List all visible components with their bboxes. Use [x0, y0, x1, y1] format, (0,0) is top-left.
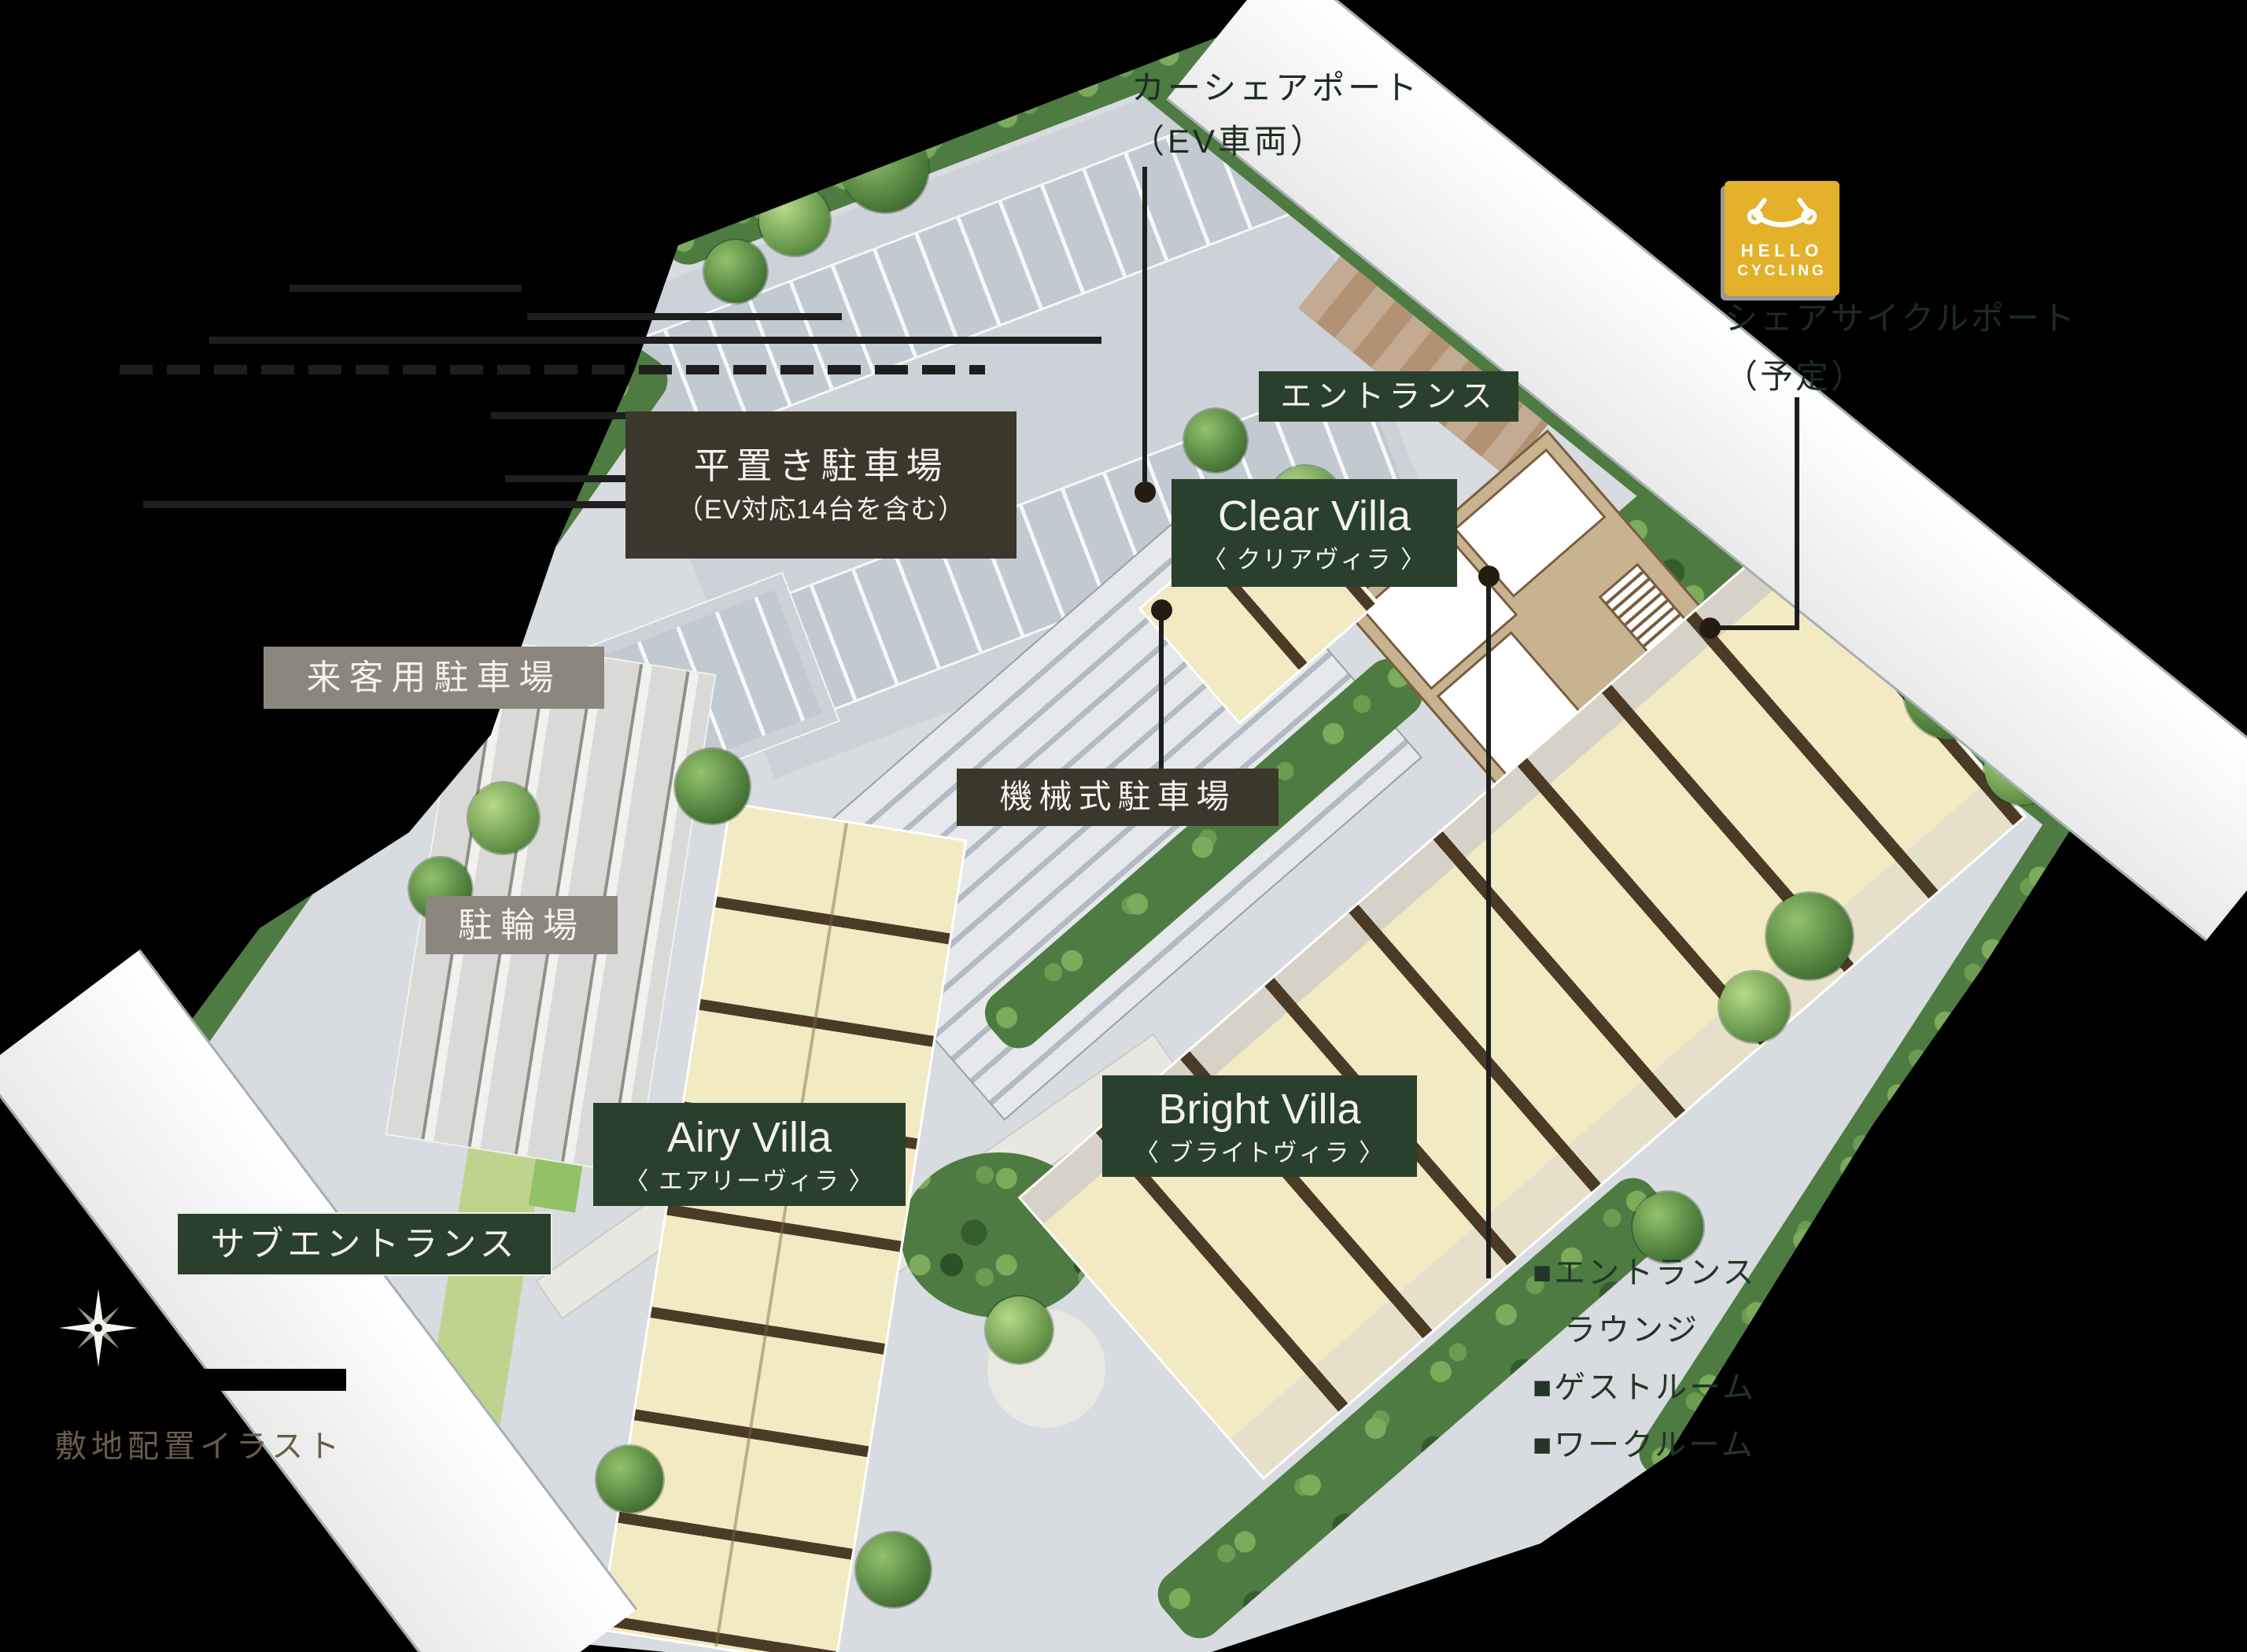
- villa-name-en: Airy Villa: [667, 1112, 832, 1165]
- annotation-line: カーシェアポート: [1131, 61, 1420, 115]
- tree: [1184, 409, 1247, 472]
- tree: [675, 749, 750, 824]
- leader-line-carshare: [1142, 167, 1147, 481]
- villa-name-en: Clear Villa: [1218, 490, 1411, 544]
- leader-line-sharecycle: [1795, 397, 1799, 630]
- tree: [1766, 893, 1853, 979]
- label-text: 機械式駐車場: [999, 776, 1235, 818]
- leader-line: [209, 337, 1101, 344]
- villa-name-en: Bright Villa: [1158, 1083, 1360, 1137]
- leader-dot: [1135, 481, 1156, 503]
- facility-item: ■ワークルーム: [1533, 1417, 1756, 1474]
- tree: [856, 1532, 931, 1607]
- tree: [468, 783, 539, 854]
- label-text: 平置き駐車場: [694, 444, 949, 489]
- label-sub-entrance: サブエントランス: [176, 1212, 552, 1276]
- facility-item: ■エントランス: [1533, 1245, 1756, 1302]
- leader-dot: [1699, 618, 1721, 639]
- label-bright-villa: Bright Villa 〈 ブライトヴィラ 〉: [1102, 1075, 1417, 1177]
- caption-site-plan: 敷地配置イラスト: [55, 1421, 344, 1466]
- leader-line: [143, 501, 625, 508]
- leader-dot: [1478, 566, 1500, 587]
- label-text: 駐輪場: [458, 904, 585, 947]
- label-visitor-parking: 来客用駐車場: [264, 647, 604, 709]
- tree: [1719, 972, 1790, 1042]
- mask-artifact: [2006, 1489, 2093, 1513]
- badge-brand-line1: HELLO: [1741, 241, 1824, 261]
- mask-artifact: [2152, 983, 2169, 1001]
- label-text: エントランス: [1280, 377, 1496, 416]
- annotation-line: シェアサイクルポート: [1725, 289, 2077, 348]
- villa-name-ja: 〈 ブライトヴィラ 〉: [1135, 1138, 1385, 1169]
- label-bicycle-parking: 駐輪場: [426, 896, 618, 954]
- label-clear-villa: Clear Villa 〈 クリアヴィラ 〉: [1171, 479, 1457, 587]
- label-airy-villa: Airy Villa 〈 エアリーヴィラ 〉: [593, 1103, 906, 1206]
- label-entrance: エントランス: [1259, 371, 1518, 422]
- annotation-line: （EV車両）: [1131, 115, 1420, 168]
- leader-line: [1159, 620, 1164, 771]
- leader-dot: [1151, 599, 1172, 621]
- leader-line: [1720, 625, 1799, 630]
- leader-line: [527, 313, 842, 320]
- label-text: 来客用駐車場: [307, 656, 562, 699]
- tree: [704, 240, 767, 303]
- hello-cycling-badge: HELLO CYCLING: [1725, 181, 1839, 296]
- leader-line-dashed: [120, 365, 985, 374]
- facility-item: ■ゲストルーム: [1533, 1359, 1756, 1417]
- badge-brand-line2: CYCLING: [1737, 263, 1827, 280]
- facility-item: ラウンジ: [1564, 1302, 1756, 1359]
- mask-artifact: [1766, 118, 1788, 140]
- label-flat-parking: 平置き駐車場 （EV対応14台を含む）: [625, 411, 1016, 559]
- label-text: サブエントランス: [210, 1222, 518, 1266]
- villa-name-ja: 〈 エアリーヴィラ 〉: [624, 1167, 874, 1197]
- leader-line-facilities: [1486, 586, 1491, 1278]
- leader-line: [491, 412, 625, 419]
- tree: [759, 185, 830, 256]
- site-plan-illustration: 平置き駐車場 （EV対応14台を含む） 来客用駐車場 エントランス Clear …: [0, 0, 2247, 1652]
- mask-artifact: [94, 1369, 346, 1391]
- tree: [596, 1446, 663, 1513]
- annotation-car-share-port: カーシェアポート （EV車両）: [1131, 61, 1420, 168]
- annotation-shared-facilities: ■エントランス ラウンジ ■ゲストルーム ■ワークルーム: [1533, 1245, 1756, 1474]
- annotation-share-cycle-port: シェアサイクルポート （予定）: [1725, 289, 2077, 406]
- bicycle-handlebar-icon: [1744, 197, 1820, 238]
- label-subtext: （EV対応14台を含む）: [677, 493, 965, 527]
- tree: [986, 1296, 1053, 1363]
- leader-line: [290, 285, 522, 292]
- leader-line: [505, 475, 625, 482]
- villa-name-ja: 〈 クリアヴィラ 〉: [1202, 545, 1426, 576]
- compass-icon: [59, 1289, 138, 1367]
- tree: [842, 126, 928, 212]
- annotation-line: （予定）: [1725, 348, 2077, 406]
- label-mechanical-parking: 機械式駐車場: [957, 769, 1278, 826]
